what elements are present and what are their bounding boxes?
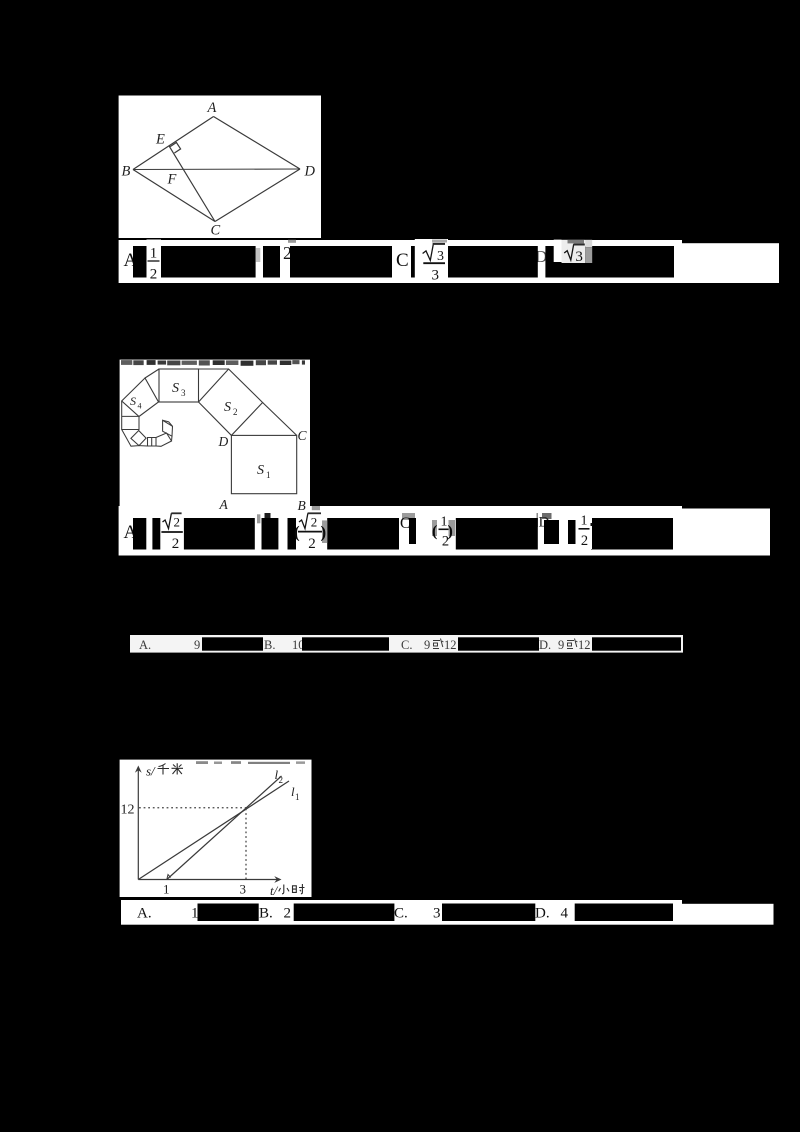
svg-text:3: 3 <box>437 249 444 264</box>
svg-text:D: D <box>218 434 229 449</box>
svg-text:A: A <box>207 100 217 116</box>
svg-text:C.: C. <box>394 906 408 922</box>
svg-text:2: 2 <box>311 515 318 530</box>
svg-text:9: 9 <box>558 638 564 652</box>
svg-text:4: 4 <box>561 906 569 922</box>
svg-text:S: S <box>172 381 179 396</box>
svg-text:D: D <box>304 164 316 180</box>
svg-text:2: 2 <box>284 906 292 922</box>
svg-text:12: 12 <box>578 638 591 652</box>
svg-text:1: 1 <box>266 470 271 480</box>
svg-text:2: 2 <box>150 267 158 283</box>
svg-text:2: 2 <box>279 775 284 785</box>
svg-text:s/: s/ <box>146 764 156 779</box>
svg-text:(: ( <box>432 523 437 540</box>
svg-text:3: 3 <box>181 388 186 398</box>
svg-text:9: 9 <box>424 638 430 652</box>
svg-text:B: B <box>122 164 131 180</box>
svg-text:3: 3 <box>240 882 247 897</box>
svg-text:B.: B. <box>264 638 275 652</box>
svg-text:S: S <box>224 400 231 415</box>
svg-text:2: 2 <box>174 515 181 530</box>
svg-text:C: C <box>298 428 308 443</box>
svg-text:12: 12 <box>121 803 135 818</box>
svg-text:1: 1 <box>581 514 588 529</box>
svg-text:C: C <box>396 250 409 271</box>
svg-text:1: 1 <box>150 246 158 262</box>
svg-text:E: E <box>155 132 165 148</box>
svg-text:C: C <box>400 515 410 532</box>
svg-text:A.: A. <box>137 906 152 922</box>
svg-text:3: 3 <box>575 249 583 265</box>
svg-text:9: 9 <box>194 638 200 652</box>
svg-text:A.: A. <box>139 638 151 652</box>
svg-text:1: 1 <box>191 906 199 922</box>
svg-text:4: 4 <box>138 402 142 411</box>
svg-text:F: F <box>167 172 177 188</box>
svg-text:B.: B. <box>259 906 273 922</box>
svg-text:): ) <box>448 523 453 540</box>
svg-text:1: 1 <box>163 882 170 897</box>
svg-text:B: B <box>298 498 306 513</box>
svg-text:3: 3 <box>433 906 441 922</box>
svg-text:C.: C. <box>401 638 412 652</box>
svg-text:D.: D. <box>535 906 550 922</box>
svg-text:2: 2 <box>172 536 180 552</box>
svg-text:D.: D. <box>539 638 551 652</box>
svg-text:C: C <box>211 223 221 239</box>
svg-text:2: 2 <box>308 536 316 552</box>
svg-text:1: 1 <box>441 515 448 530</box>
svg-text:S: S <box>130 394 136 408</box>
svg-text:A: A <box>219 497 229 512</box>
svg-text:2: 2 <box>581 533 588 549</box>
svg-text:12: 12 <box>444 638 457 652</box>
svg-text:1: 1 <box>295 792 300 802</box>
svg-text:3: 3 <box>432 268 440 284</box>
svg-text:2: 2 <box>233 407 238 417</box>
svg-text:): ) <box>321 523 327 542</box>
svg-text:S: S <box>257 463 264 478</box>
